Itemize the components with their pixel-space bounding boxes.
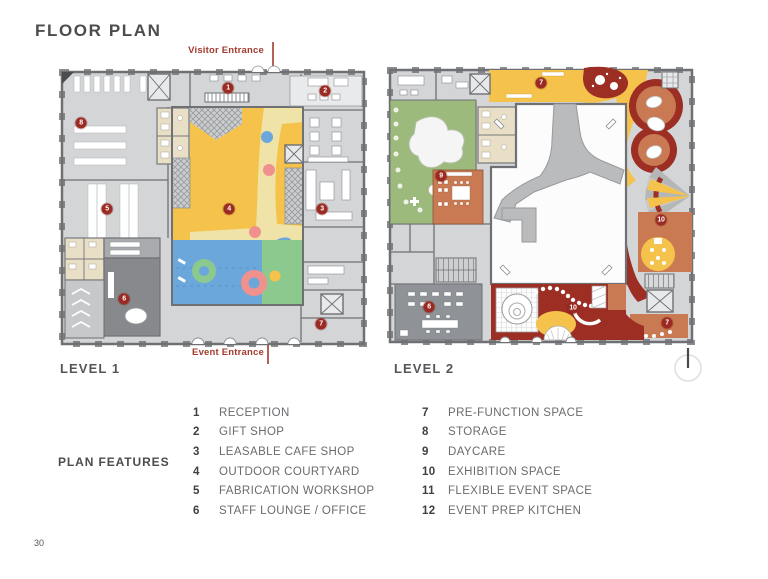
legend-item-label: FLEXIBLE EVENT SPACE xyxy=(448,485,592,497)
legend-column-1: 1RECEPTION 2GIFT SHOP 3LEASABLE CAFE SHO… xyxy=(193,403,374,521)
page-title: FLOOR PLAN xyxy=(35,21,162,41)
legend-column-2: 7PRE-FUNCTION SPACE 8STORAGE 9DAYCARE 10… xyxy=(422,403,592,521)
legend-item: 1RECEPTION xyxy=(193,403,374,423)
legend-item-label: GIFT SHOP xyxy=(219,426,284,438)
legend-item-label: DAYCARE xyxy=(448,446,506,458)
legend-item-label: OUTDOOR COURTYARD xyxy=(219,466,360,478)
plan-badge: 4 xyxy=(224,204,235,215)
plan-badge: 10 xyxy=(568,303,579,314)
north-arrow-icon xyxy=(671,344,707,389)
level-2-label: LEVEL 2 xyxy=(394,361,454,376)
legend-item-label: STORAGE xyxy=(448,426,507,438)
legend-item: 7PRE-FUNCTION SPACE xyxy=(422,403,592,423)
plan-badge: 5 xyxy=(102,204,113,215)
plan-badge: 7 xyxy=(662,318,673,329)
legend-item-number: 2 xyxy=(193,426,219,438)
legend-item-label: LEASABLE CAFE SHOP xyxy=(219,446,355,458)
legend-item-label: EXHIBITION SPACE xyxy=(448,466,561,478)
visitor-entrance-label: Visitor Entrance xyxy=(164,45,264,56)
plan-badge: 9 xyxy=(436,171,447,182)
legend-item: 2GIFT SHOP xyxy=(193,423,374,443)
legend-item: 10EXHIBITION SPACE xyxy=(422,462,592,482)
legend-item-label: PRE-FUNCTION SPACE xyxy=(448,407,583,419)
legend-heading: PLAN FEATURES xyxy=(58,455,169,469)
level-1-label: LEVEL 1 xyxy=(60,361,120,376)
legend-item-label: EVENT PREP KITCHEN xyxy=(448,505,581,517)
legend-item-label: FABRICATION WORKSHOP xyxy=(219,485,374,497)
legend-item: 4OUTDOOR COURTYARD xyxy=(193,462,374,482)
plan-badge: 6 xyxy=(424,302,435,313)
plan-badge: 8 xyxy=(76,118,87,129)
legend-item-label: STAFF LOUNGE / OFFICE xyxy=(219,505,366,517)
legend-item-number: 4 xyxy=(193,466,219,478)
legend-item-number: 5 xyxy=(193,485,219,497)
legend-item-number: 6 xyxy=(193,505,219,517)
legend-item-label: RECEPTION xyxy=(219,407,290,419)
plan-badge: 1 xyxy=(223,83,234,94)
plan-badge: 7 xyxy=(536,78,547,89)
legend-item-number: 10 xyxy=(422,466,448,478)
legend-item: 9DAYCARE xyxy=(422,442,592,462)
legend-item-number: 12 xyxy=(422,505,448,517)
plan-badge: 2 xyxy=(320,86,331,97)
legend-item-number: 7 xyxy=(422,407,448,419)
plan-badge: 7 xyxy=(316,319,327,330)
legend-item-number: 11 xyxy=(422,485,448,497)
plan-badge: 3 xyxy=(317,204,328,215)
legend-item: 3LEASABLE CAFE SHOP xyxy=(193,442,374,462)
legend-item-number: 8 xyxy=(422,426,448,438)
level-2-plan: 7 9 10 10 6 7 xyxy=(386,62,702,347)
legend-item: 5FABRICATION WORKSHOP xyxy=(193,481,374,501)
legend-item: 11FLEXIBLE EVENT SPACE xyxy=(422,481,592,501)
legend-item-number: 1 xyxy=(193,407,219,419)
plan-badge: 10 xyxy=(656,215,667,226)
legend-item: 12EVENT PREP KITCHEN xyxy=(422,501,592,521)
floor-plan-page: FLOOR PLAN Visitor Entrance Event Entran… xyxy=(0,0,768,579)
legend-item: 8STORAGE xyxy=(422,423,592,443)
legend-item-number: 3 xyxy=(193,446,219,458)
legend-item-number: 9 xyxy=(422,446,448,458)
page-number: 30 xyxy=(34,538,44,548)
level-1-plan: 1 2 3 4 5 6 7 8 xyxy=(58,62,374,352)
plan-badge: 6 xyxy=(119,294,130,305)
legend-item: 6STAFF LOUNGE / OFFICE xyxy=(193,501,374,521)
